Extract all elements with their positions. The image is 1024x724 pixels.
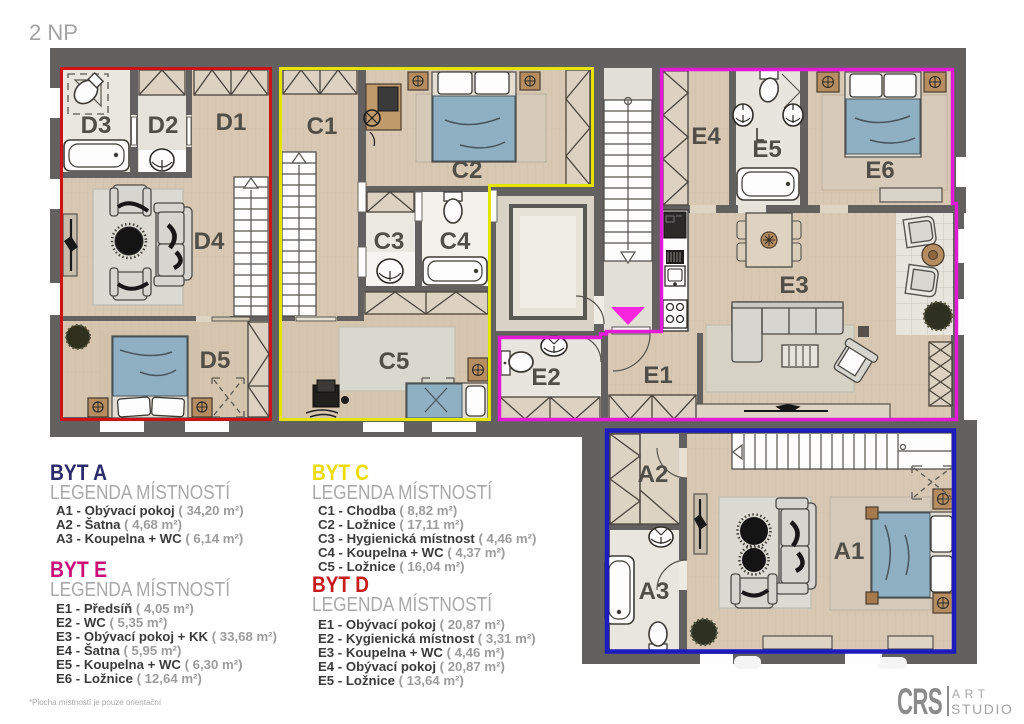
svg-text:E4: E4	[691, 123, 721, 150]
svg-text:D5: D5	[200, 347, 231, 374]
svg-text:A1 - Obývací pokoj ( 34,20 m²): A1 - Obývací pokoj ( 34,20 m²)	[56, 503, 244, 518]
svg-text:D3: D3	[81, 112, 112, 139]
svg-text:C4: C4	[440, 228, 471, 255]
svg-text:E4 - Šatna ( 5,95 m²): E4 - Šatna ( 5,95 m²)	[56, 643, 181, 658]
svg-text:E2 - Kygienická místnost ( 3,3: E2 - Kygienická místnost ( 3,31 m²)	[318, 631, 536, 646]
svg-text:A3: A3	[639, 578, 670, 605]
svg-text:D1: D1	[216, 109, 247, 136]
svg-text:C3 - Hygienická místnost ( 4,4: C3 - Hygienická místnost ( 4,46 m²)	[318, 531, 536, 546]
svg-text:E4 - Obývací pokoj ( 20,87 m²): E4 - Obývací pokoj ( 20,87 m²)	[318, 659, 505, 674]
svg-text:A2: A2	[638, 461, 669, 488]
svg-text:2 NP: 2 NP	[29, 20, 78, 45]
svg-text:E5: E5	[752, 136, 781, 163]
svg-text:CRS: CRS	[897, 681, 942, 722]
svg-text:C5: C5	[379, 348, 410, 375]
svg-text:STUDIO: STUDIO	[951, 701, 1014, 717]
svg-text:C2 - Ložnice ( 17,11 m²): C2 - Ložnice ( 17,11 m²)	[318, 517, 464, 532]
svg-text:LEGENDA MÍSTNOSTÍ: LEGENDA MÍSTNOSTÍ	[312, 481, 492, 504]
svg-text:LEGENDA MÍSTNOSTÍ: LEGENDA MÍSTNOSTÍ	[50, 578, 230, 601]
svg-text:E2 - WC ( 5,35 m²): E2 - WC ( 5,35 m²)	[56, 615, 167, 630]
svg-text:E2: E2	[531, 364, 560, 391]
svg-text:A2 - Šatna ( 4,68 m²): A2 - Šatna ( 4,68 m²)	[56, 517, 182, 532]
svg-text:E1 - Předsíň ( 4,05 m²): E1 - Předsíň ( 4,05 m²)	[56, 601, 194, 616]
svg-text:E1 - Obývací pokoj ( 20,87 m²): E1 - Obývací pokoj ( 20,87 m²)	[318, 617, 505, 632]
svg-text:C2: C2	[452, 157, 483, 184]
svg-text:E5 - Ložnice ( 13,64 m²): E5 - Ložnice ( 13,64 m²)	[318, 673, 464, 688]
svg-text:D2: D2	[148, 112, 179, 139]
svg-text:E6: E6	[865, 157, 894, 184]
svg-text:C1: C1	[307, 113, 338, 140]
svg-text:E5 - Koupelna + WC ( 6,30 m²): E5 - Koupelna + WC ( 6,30 m²)	[56, 657, 243, 672]
svg-text:C3: C3	[374, 228, 405, 255]
svg-text:LEGENDA MÍSTNOSTÍ: LEGENDA MÍSTNOSTÍ	[312, 593, 492, 616]
svg-text:E3: E3	[779, 272, 808, 299]
svg-text:E3 - Obývací pokoj + KK ( 33,6: E3 - Obývací pokoj + KK ( 33,68 m²)	[56, 629, 277, 644]
svg-text:E3 - Koupelna + WC ( 4,46 m²): E3 - Koupelna + WC ( 4,46 m²)	[318, 645, 505, 660]
svg-text:A1: A1	[834, 538, 865, 565]
svg-text:ART: ART	[952, 687, 990, 701]
svg-text:D4: D4	[194, 228, 225, 255]
svg-text:C4 - Koupelna + WC ( 4,37 m²): C4 - Koupelna + WC ( 4,37 m²)	[318, 545, 505, 560]
svg-text:A3 - Koupelna + WC ( 6,14 m²): A3 - Koupelna + WC ( 6,14 m²)	[56, 531, 243, 546]
svg-text:*Plocha místností je pouze ori: *Plocha místností je pouze orientační	[29, 698, 162, 707]
svg-text:E1: E1	[643, 362, 672, 389]
svg-text:C1 - Chodba ( 8,82 m²): C1 - Chodba ( 8,82 m²)	[318, 503, 457, 518]
svg-text:E6 - Ložnice ( 12,64 m²): E6 - Ložnice ( 12,64 m²)	[56, 671, 202, 686]
svg-text:LEGENDA MÍSTNOSTÍ: LEGENDA MÍSTNOSTÍ	[50, 481, 230, 504]
